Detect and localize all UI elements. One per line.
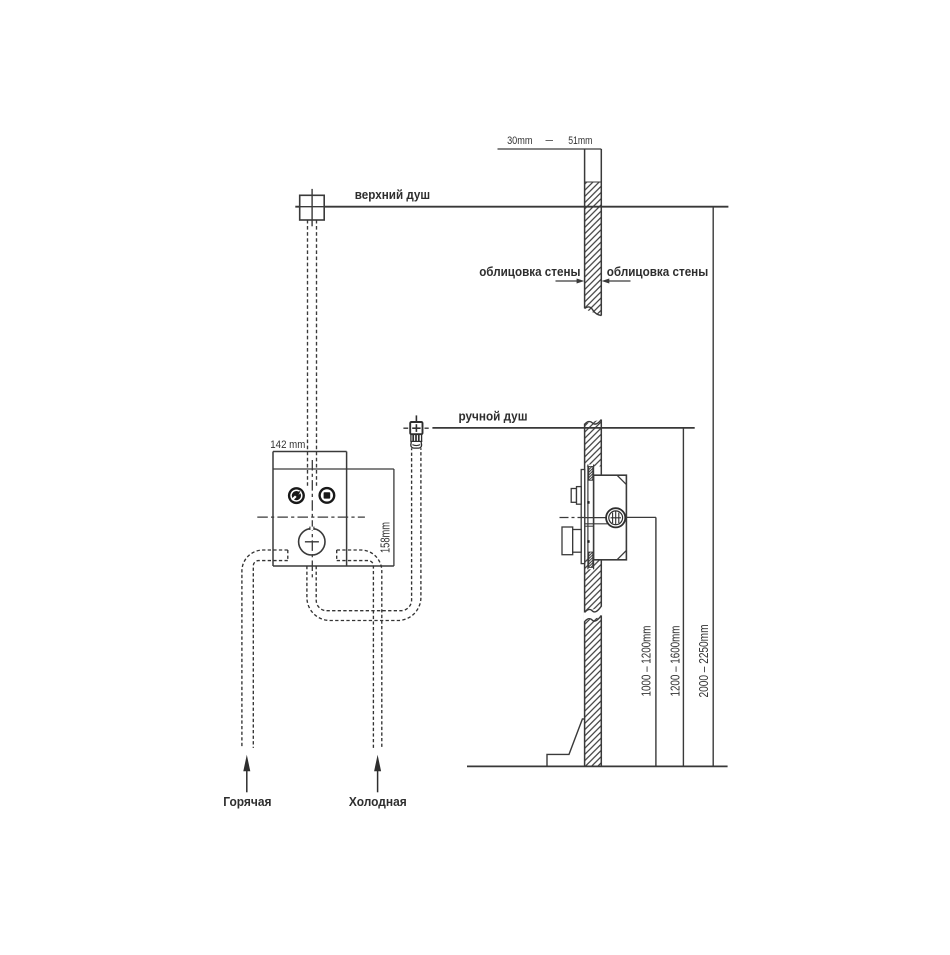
svg-text:142 mm: 142 mm [270, 439, 305, 451]
svg-text:Горячая: Горячая [223, 794, 271, 809]
svg-text:облицовка стены: облицовка стены [479, 264, 580, 279]
svg-text:верхний душ: верхний душ [355, 187, 430, 202]
svg-text:облицовка стены: облицовка стены [607, 264, 708, 279]
svg-text:158mm: 158mm [379, 522, 393, 553]
svg-text:–: – [546, 135, 555, 147]
svg-text:2000 – 2250mm: 2000 – 2250mm [697, 625, 711, 698]
svg-text:1200 – 1600mm: 1200 – 1600mm [669, 626, 683, 697]
svg-text:30mm: 30mm [507, 135, 532, 147]
svg-text:ручной душ: ручной душ [459, 408, 528, 423]
svg-text:1000 – 1200mm: 1000 – 1200mm [640, 626, 654, 697]
svg-text:Холодная: Холодная [349, 794, 407, 809]
svg-text:51mm: 51mm [568, 135, 592, 147]
